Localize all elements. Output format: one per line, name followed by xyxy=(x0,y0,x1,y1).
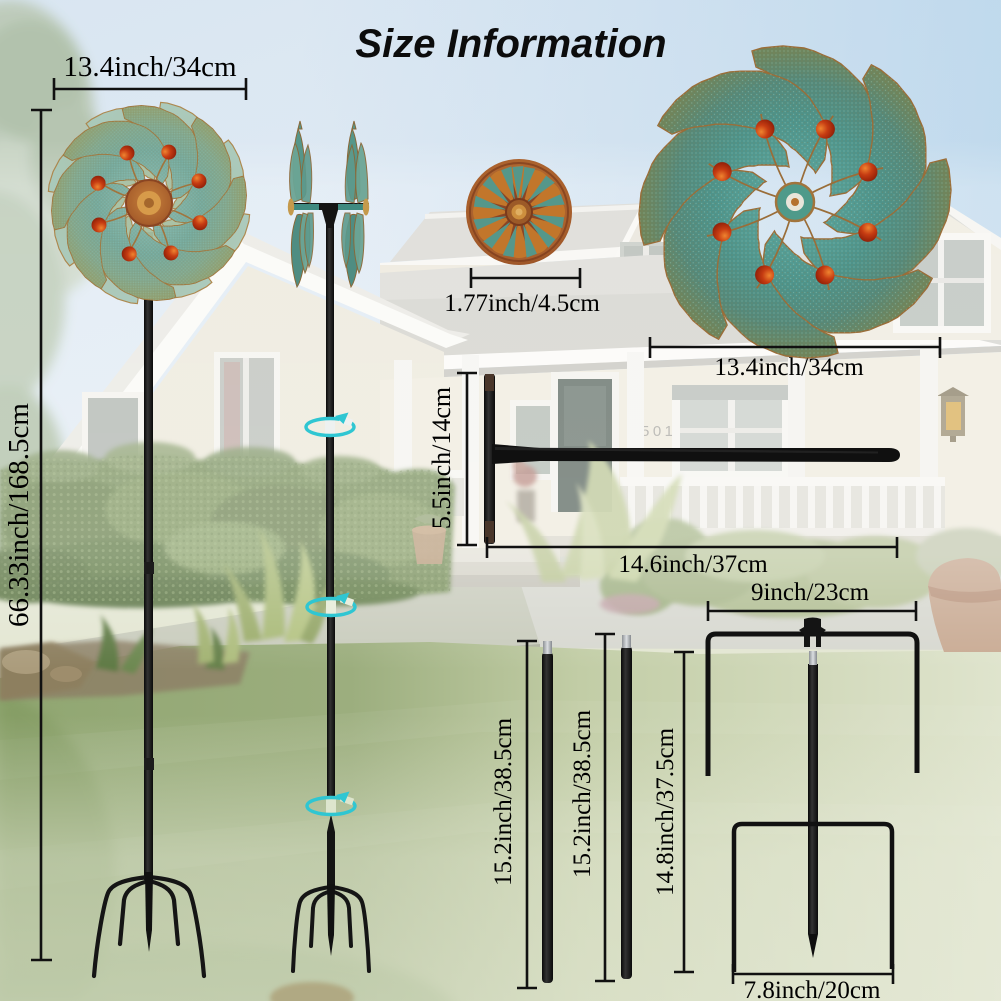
svg-text:Size Information: Size Information xyxy=(355,22,666,66)
svg-text:15.2inch/38.5cm: 15.2inch/38.5cm xyxy=(490,717,517,886)
svg-text:13.4inch/34cm: 13.4inch/34cm xyxy=(63,51,237,83)
svg-text:5.5inch/14cm: 5.5inch/14cm xyxy=(427,387,456,529)
svg-text:66.33inch/168.5cm: 66.33inch/168.5cm xyxy=(3,403,35,627)
svg-text:9inch/23cm: 9inch/23cm xyxy=(751,579,870,606)
svg-text:14.8inch/37.5cm: 14.8inch/37.5cm xyxy=(652,727,679,896)
svg-text:15.2inch/38.5cm: 15.2inch/38.5cm xyxy=(569,709,596,878)
svg-text:7.8inch/20cm: 7.8inch/20cm xyxy=(744,977,881,1001)
svg-text:1.77inch/4.5cm: 1.77inch/4.5cm xyxy=(444,290,600,317)
svg-text:13.4inch/34cm: 13.4inch/34cm xyxy=(714,354,864,381)
svg-text:14.6inch/37cm: 14.6inch/37cm xyxy=(618,551,768,578)
